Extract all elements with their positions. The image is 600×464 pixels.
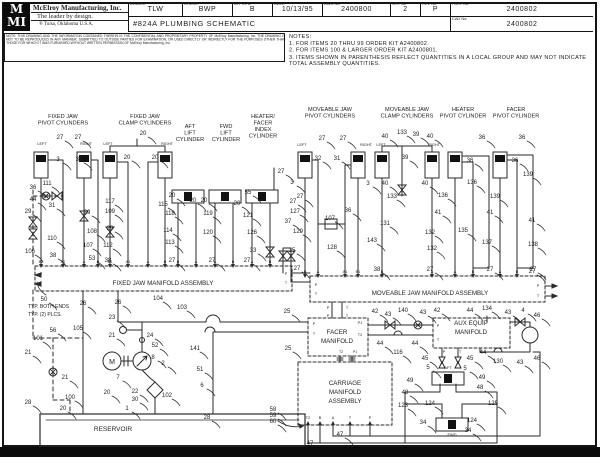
callout-number: 113	[165, 240, 175, 246]
cylinder-group-label: FIXED JAW	[130, 114, 160, 120]
cylinder-piston	[105, 155, 115, 162]
callout-number: 130	[493, 359, 504, 365]
callout-leader	[500, 200, 508, 207]
cylinder-group-label: HEATER	[452, 107, 474, 113]
callout-leader	[305, 200, 313, 207]
cylinder-group-label: CYLINDER	[212, 137, 240, 143]
callout-number: 44	[467, 308, 474, 314]
side-label: RIGHT	[360, 143, 372, 147]
callout-leader	[33, 356, 41, 363]
callout-number: 133	[397, 130, 408, 136]
cylinder-piston	[300, 155, 310, 162]
callout-leader	[57, 242, 65, 249]
callout-leader	[93, 249, 101, 256]
callout-leader	[198, 204, 206, 211]
callout-leader	[253, 219, 261, 226]
callout-leader	[57, 209, 65, 216]
port-label: A	[431, 270, 434, 274]
callout-number: 111	[42, 181, 52, 187]
port-arrow	[303, 274, 307, 278]
port-label: A	[195, 260, 198, 264]
callout-number: 114	[163, 228, 173, 234]
callout-number: 36	[519, 135, 526, 141]
callout-number: 101	[33, 336, 44, 342]
port-label: T	[437, 338, 440, 342]
callout-leader	[498, 407, 506, 414]
port-label: B2	[39, 260, 44, 264]
callout-number: 55	[245, 190, 252, 196]
callout-number: 21	[25, 350, 32, 356]
callout-leader	[278, 425, 286, 432]
fixed-jaw-manifold-label: FIXED JAW MANIFOLD ASSEMBLY	[113, 280, 214, 287]
callout-leader	[132, 161, 140, 168]
callout-number: 48	[477, 385, 484, 391]
callout-number: 36	[479, 135, 486, 141]
cylinder-group-label: CYLINDER	[249, 134, 277, 140]
callout-leader	[168, 367, 176, 374]
callout-number: 39	[413, 132, 420, 138]
callout-number: 42	[372, 309, 379, 315]
callout-number: 32	[76, 157, 83, 163]
callout-number: 8	[151, 355, 155, 361]
port-label: T	[346, 314, 349, 318]
callout-number: 46	[534, 356, 541, 362]
port-label: B	[232, 260, 235, 264]
callout-leader	[92, 216, 100, 223]
callout-number: 49	[479, 375, 486, 381]
port-label: B1	[356, 270, 361, 274]
callout-number: 41	[435, 210, 442, 216]
callout-leader	[373, 187, 381, 194]
port-label: B	[304, 270, 307, 274]
callout-number: 40	[382, 134, 389, 140]
callout-leader	[327, 142, 335, 149]
callout-number: 102	[162, 393, 173, 399]
callout-leader	[403, 356, 411, 363]
callout-number: 135	[458, 228, 469, 234]
cylinder-group-label: LIFT	[184, 131, 196, 137]
callout-number: 22	[132, 389, 139, 395]
callout-number: 23	[109, 315, 116, 321]
cylinder-group-label: HEATER/	[251, 114, 275, 120]
callout-number: 53	[89, 256, 96, 262]
side-label: RIGHT	[161, 142, 173, 146]
callout-number: 7	[116, 375, 120, 381]
callout-number: 131	[380, 221, 391, 227]
port-arrow	[348, 421, 352, 425]
callout-leader	[473, 434, 481, 441]
cylinder-piston	[36, 155, 46, 162]
callout-leader	[390, 227, 398, 234]
callout-number: 44	[30, 197, 37, 203]
port-label: B	[516, 270, 519, 274]
callout-leader	[175, 246, 183, 253]
callout-number: 56	[50, 328, 57, 334]
callout-leader	[323, 162, 331, 169]
callout-leader	[140, 395, 148, 402]
callout-leader	[217, 264, 225, 271]
callout-number: 124	[425, 401, 436, 407]
cylinder-piston	[427, 155, 437, 162]
callout-leader	[420, 347, 428, 354]
callout-leader	[353, 214, 361, 221]
reservoir	[40, 414, 305, 446]
port-label: A	[251, 260, 254, 264]
port-label: A	[214, 260, 217, 264]
callout-leader	[337, 251, 345, 258]
callout-number: 48	[402, 390, 409, 396]
callout-leader	[377, 244, 385, 251]
callout-leader	[297, 186, 305, 193]
port-label: A	[454, 270, 457, 274]
callout-leader	[345, 438, 353, 445]
callout-number: 44	[480, 350, 487, 356]
callout-leader	[533, 178, 541, 185]
port-label: P1	[358, 321, 363, 325]
callout-number: 29	[84, 210, 91, 216]
port-label: A1	[126, 260, 131, 264]
component-label: P1	[353, 350, 357, 354]
callout-leader	[117, 339, 125, 346]
callout-number: 109	[105, 209, 116, 215]
callout-number: 39	[402, 155, 409, 161]
callout-number: 137	[482, 240, 493, 246]
port-label: B	[472, 270, 475, 274]
callout-number: 119	[203, 211, 213, 217]
callout-leader	[160, 349, 168, 356]
callout-leader	[175, 217, 183, 224]
port-label: T	[315, 292, 318, 296]
callout-number: 20	[169, 193, 176, 199]
callout-leader	[123, 306, 131, 313]
cylinder-group-label: FIXED JAW	[48, 114, 78, 120]
component-label: AFT	[444, 365, 452, 370]
callout-leader	[385, 347, 393, 354]
side-label: LEFT	[297, 143, 307, 147]
port-label: B	[177, 260, 180, 264]
cylinder-group-label: CLAMP CYLINDERS	[119, 121, 172, 127]
port-label: A	[332, 416, 335, 420]
callout-leader	[300, 215, 308, 222]
cylinder-group-label: PIVOT CYLINDER	[493, 114, 540, 120]
callout-leader	[410, 396, 418, 403]
callout-number: 29	[107, 226, 114, 232]
callout-leader	[258, 254, 266, 261]
callout-number: 36	[30, 185, 37, 191]
callout-leader	[477, 424, 485, 431]
cylinder-piston	[495, 155, 505, 162]
callout-number: 116	[393, 350, 403, 356]
cylinder-piston	[450, 155, 460, 162]
callout-number: 27	[75, 135, 82, 141]
callout-number: 134	[482, 306, 493, 312]
aux-equip-manifold-label: AUX EQUIP	[454, 320, 488, 327]
callout-number: 33	[250, 248, 257, 254]
callout-leader	[75, 401, 83, 408]
callout-number: 27	[487, 267, 494, 273]
callout-number: 40	[382, 181, 389, 187]
callout-leader	[437, 252, 445, 259]
callout-number: 20	[104, 390, 111, 396]
port-label: T2	[306, 416, 310, 420]
cylinder-group-label: FWD	[220, 124, 233, 130]
callout-number: 45	[467, 356, 474, 362]
callout-number: 123	[398, 403, 409, 409]
callout-number: 106	[25, 249, 36, 255]
callout-number: 37	[285, 219, 292, 225]
cylinder-group-label: PIVOT CYLINDER	[440, 114, 487, 120]
callout-number: 32	[315, 156, 322, 162]
callout-number: 115	[158, 202, 168, 208]
callout-leader	[70, 381, 78, 388]
callout-number: 1	[125, 406, 129, 412]
callout-leader	[397, 200, 405, 207]
callout-number: 51	[197, 367, 204, 373]
callout-number: 27	[278, 169, 285, 175]
callout-number: 20	[124, 155, 131, 161]
callout-leader	[115, 232, 123, 239]
component-label: TYP. BOTH ENDS	[28, 304, 70, 310]
callout-number: 29	[25, 209, 32, 215]
callout-leader	[123, 381, 131, 388]
callout-number: 36	[512, 158, 519, 164]
callout-leader	[303, 235, 311, 242]
port-arrow	[318, 421, 322, 425]
callout-leader	[292, 315, 300, 322]
callout-leader	[33, 406, 41, 413]
side-label: LEFT	[103, 142, 113, 146]
callout-number: 24	[147, 333, 154, 339]
callout-number: 52	[152, 343, 159, 349]
callout-leader	[205, 373, 213, 380]
callout-number: 31	[49, 203, 56, 209]
callout-leader	[487, 381, 495, 388]
port-label: T	[459, 350, 462, 354]
carriage-manifold-label: MANIFOLD	[329, 389, 362, 396]
callout-leader	[475, 164, 483, 171]
port-label: A	[83, 260, 86, 264]
cylinder-group-label: MOVEABLE JAW	[308, 107, 353, 113]
callout-number: 44	[412, 341, 419, 347]
callout-number: 100	[65, 395, 76, 401]
port-label: A	[147, 260, 150, 264]
component-label: FWD	[447, 432, 456, 437]
port-label: P	[327, 314, 330, 318]
callout-number: 141	[190, 346, 201, 352]
callout-leader	[430, 187, 438, 194]
callout-leader	[475, 362, 483, 369]
callout-number: 43	[517, 360, 524, 366]
callout-number: 143	[367, 238, 378, 244]
callout-number: 110	[47, 236, 57, 242]
callout-number: 40	[427, 134, 434, 140]
callout-leader	[538, 248, 546, 255]
port-arrow	[552, 284, 557, 298]
callout-leader	[408, 409, 416, 416]
callout-number: 41	[529, 218, 536, 224]
callout-leader	[43, 342, 51, 349]
side-label: LEFT	[37, 142, 47, 146]
callout-number: 27	[290, 199, 297, 205]
port-label: B	[319, 416, 322, 420]
callout-number: 25	[284, 309, 291, 315]
callout-number: 21	[62, 375, 69, 381]
callout-leader	[348, 142, 356, 149]
port-label: A	[499, 270, 502, 274]
callout-number: 49	[407, 378, 414, 384]
callout-number: 120	[203, 230, 214, 236]
port-label: B1	[108, 260, 113, 264]
motor-letter: M	[109, 359, 115, 366]
callout-number: 20	[152, 155, 159, 161]
callout-leader	[477, 186, 485, 193]
callout-leader	[492, 246, 500, 253]
callout-number: 104	[153, 296, 164, 302]
callout-number: 27	[530, 267, 537, 273]
callout-leader	[527, 141, 535, 148]
callout-leader	[212, 421, 220, 428]
callout-number: 5	[463, 366, 467, 372]
port-label: T	[346, 306, 349, 310]
callout-number: 44	[377, 341, 384, 347]
callout-number: 124	[467, 418, 478, 424]
callout-number: 43	[505, 310, 512, 316]
callout-number: 26	[115, 300, 122, 306]
callout-leader	[487, 141, 495, 148]
callout-number: 105	[73, 326, 84, 332]
callout-number: 5	[426, 365, 430, 371]
cylinder-piston	[353, 155, 363, 162]
callout-leader	[200, 352, 208, 359]
callout-number: 41	[487, 210, 494, 216]
callout-leader	[435, 236, 443, 243]
cylinder-group-label: CLAMP CYLINDERS	[381, 114, 434, 120]
port-label: A1	[343, 270, 348, 274]
plumbing-schematic: 2727332202020111364431292911710929110108…	[0, 0, 600, 464]
callout-leader	[187, 311, 195, 318]
callout-number: 136	[467, 180, 478, 186]
callout-leader	[257, 236, 265, 243]
callout-number: 107	[83, 243, 94, 249]
cylinder-group-label: INDEX	[254, 127, 271, 133]
callout-leader	[468, 234, 476, 241]
callout-number: 20	[140, 131, 147, 137]
callout-number: 118	[165, 211, 175, 217]
port-arrow	[331, 421, 335, 425]
callout-number: 121	[243, 213, 254, 219]
port-label: B	[164, 260, 167, 264]
callout-leader	[293, 352, 301, 359]
port-label: T2	[358, 333, 362, 337]
callout-number: 6	[200, 383, 204, 389]
cylinder-piston	[160, 155, 170, 162]
port-label: P	[327, 306, 330, 310]
callout-leader	[63, 163, 71, 170]
callout-number: 112	[103, 243, 113, 249]
drawing-sheet: M MI McElroy Manufacturing, Inc. The lea…	[0, 0, 600, 464]
callout-number: 138	[528, 242, 539, 248]
callout-number: 28	[204, 415, 211, 421]
callout-leader	[410, 161, 418, 168]
callout-leader	[88, 307, 96, 314]
callout-leader	[213, 217, 221, 224]
moveable-jaw-manifold-label: MOVEABLE JAW MANIFOLD ASSEMBLY	[372, 290, 489, 297]
callout-number: 42	[434, 308, 441, 314]
callout-leader	[140, 403, 148, 410]
callout-leader	[428, 316, 436, 323]
callout-leader	[495, 216, 503, 223]
port-label: P	[285, 272, 288, 276]
cylinder-group-label: MOVEABLE JAW	[385, 107, 430, 113]
carriage-manifold-label: CARRIAGE	[329, 380, 361, 387]
port-label: P	[315, 283, 318, 287]
callout-leader	[172, 399, 180, 406]
callout-number: 43	[385, 312, 392, 318]
callout-leader	[113, 264, 121, 271]
port-label: P	[443, 350, 446, 354]
callout-number: 31	[334, 156, 341, 162]
callout-number: 50	[41, 297, 48, 303]
callout-number: 117	[105, 199, 115, 205]
port-label: T	[313, 332, 316, 336]
callout-number: 20	[234, 201, 241, 207]
side-label: LEFT	[376, 143, 386, 147]
callout-number: 20	[201, 198, 208, 204]
callout-number: 20	[190, 198, 197, 204]
callout-leader	[113, 249, 121, 256]
cylinder-group-label: LIFT	[220, 131, 232, 137]
callout-number: 46	[534, 313, 541, 319]
callout-leader	[65, 141, 73, 148]
callout-leader	[428, 426, 436, 433]
port-label: T	[349, 416, 352, 420]
callout-number: 3	[290, 180, 294, 186]
gauge-icon	[120, 327, 127, 334]
callout-number: 28	[25, 400, 32, 406]
callout-number: 34	[420, 420, 427, 426]
callout-leader	[520, 164, 528, 171]
callout-number: 27	[57, 135, 64, 141]
callout-leader	[390, 187, 398, 194]
callout-number: 139	[490, 194, 501, 200]
callout-number: 27	[340, 136, 347, 142]
carriage-manifold-label: ASSEMBLY	[329, 398, 362, 405]
callout-leader	[112, 396, 120, 403]
callout-leader	[132, 412, 140, 419]
callout-number: 4	[521, 308, 525, 314]
port-label: A2	[61, 260, 66, 264]
callout-number: 36	[467, 158, 474, 164]
callout-leader	[68, 412, 76, 419]
callout-number: 25	[285, 346, 292, 352]
port-label: T	[285, 281, 288, 285]
callout-number: 38	[50, 253, 57, 259]
cylinder-group-label: FACER	[254, 121, 273, 127]
facer-manifold-label: MANIFOLD	[321, 338, 354, 345]
callout-leader	[415, 384, 423, 391]
callout-leader	[213, 236, 221, 243]
callout-leader	[148, 137, 156, 144]
fixed-jaw-manifold-box	[35, 266, 292, 291]
callout-number: 103	[177, 305, 188, 311]
cylinder-group-label: FACER	[507, 107, 526, 113]
callout-number: 47	[337, 432, 344, 438]
side-label: RIGHT	[428, 143, 440, 147]
callout-leader	[207, 389, 215, 396]
callout-leader	[115, 205, 123, 212]
callout-leader	[542, 319, 550, 326]
callout-leader	[537, 224, 545, 231]
